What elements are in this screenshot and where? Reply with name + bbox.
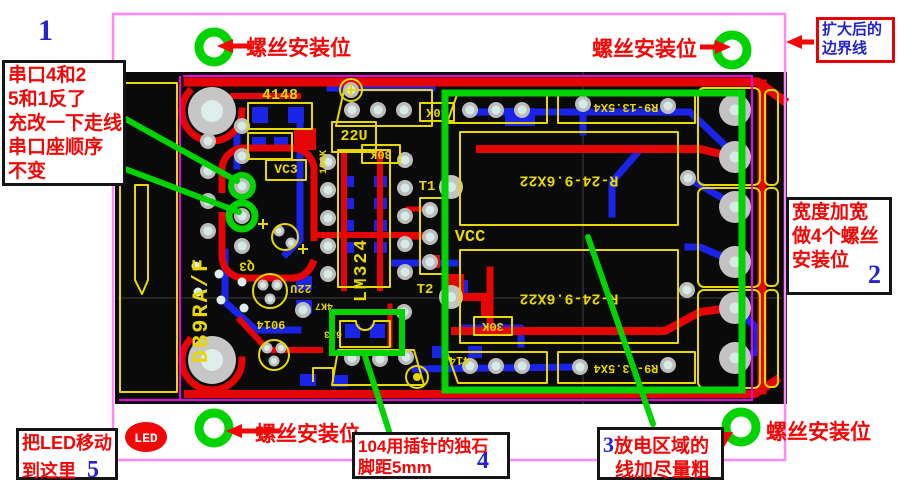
annotated-pcb-screenshot: DB9RA/F 4148 22U 100K VC3 LM324 T1 T2 VC…: [0, 0, 900, 480]
note-line: 充改一下走线: [8, 112, 120, 136]
note-line: 到这里 5: [22, 455, 112, 480]
note-line: 扩大后的: [822, 21, 889, 40]
note-line: 做4个螺丝: [792, 225, 886, 249]
note-line: 线加尽量粗: [603, 459, 718, 480]
region-number-5: 5: [87, 457, 99, 480]
label-res-4k7: 4K7: [315, 300, 333, 311]
label-relay-pins-top: R9-13.5X4: [594, 100, 659, 114]
label-t1: T1: [419, 179, 436, 195]
screw-label-top-left: 螺丝安装位: [246, 32, 351, 62]
note-line: 宽度加宽: [792, 201, 886, 225]
note-line: 3放电区域的: [603, 431, 718, 459]
label-q3: Q3: [239, 259, 255, 274]
note-line: 串口4和2: [8, 64, 120, 88]
label-9014: 9014: [257, 317, 286, 331]
label-relay-pins-bottom: R9-13.5X4: [594, 361, 659, 375]
label-res-30k-c: 30K: [481, 319, 503, 333]
region-number-3: 3: [603, 432, 614, 457]
note-line: 不变: [8, 160, 120, 184]
region-number-4: 4: [477, 446, 489, 476]
note-line: 边界线: [822, 40, 889, 59]
label-cap-22u-top: 22U: [340, 128, 367, 145]
label-res-100k: 100K: [319, 150, 330, 174]
label-t2: T2: [417, 282, 434, 298]
note-move-led: 把LED移动 到这里 5: [16, 428, 118, 480]
label-cap-22u-b: 22U: [290, 281, 312, 295]
label-lm324: LM324: [352, 238, 372, 302]
region-number-1: 1: [38, 14, 53, 48]
screw-position-marker-bottom-right: [726, 412, 756, 442]
note-serial-port: 串口4和2 5和1反了 充改一下走线 串口座顺序 不变: [2, 60, 126, 186]
screw-label-top-right: 螺丝安装位: [592, 33, 697, 63]
label-vcc: VCC: [455, 228, 486, 247]
arrow-boundary-icon: [786, 35, 814, 49]
led-marker-label: LED: [134, 431, 158, 446]
screw-label-bottom-right: 螺丝安装位: [766, 416, 871, 446]
label-db9-connector: DB9RA/F: [189, 257, 214, 363]
led-marker: LED: [125, 422, 167, 452]
note-line-text: 到这里: [22, 461, 76, 480]
screw-position-marker-bottom-left: [199, 413, 229, 443]
note-line: 串口座顺序: [8, 136, 120, 160]
note-cap-104: 104用插针的独石 脚距5mm 4: [352, 432, 510, 479]
label-relay1: R-24-9.6X22: [519, 172, 618, 189]
label-res-30k-b: 30K: [369, 147, 391, 161]
screw-label-bottom-left: 螺丝安装位: [255, 418, 360, 448]
note-widen-board: 宽度加宽 做4个螺丝 安装位 2: [786, 197, 892, 295]
note-line-text: 放电区域的: [614, 436, 709, 457]
region-number-2: 2: [868, 259, 881, 292]
pcb-layout-graphic: DB9RA/F 4148 22U 100K VC3 LM324 T1 T2 VC…: [0, 0, 900, 480]
note-discharge-area: 3放电区域的 线加尽量粗: [597, 427, 724, 480]
note-expanded-boundary: 扩大后的 边界线: [816, 17, 895, 63]
label-vc3: VC3: [274, 162, 298, 177]
note-line: 5和1反了: [8, 88, 120, 112]
note-line: 把LED移动: [22, 432, 112, 455]
label-diode-4148-top: 4148: [262, 87, 298, 104]
arrow-right-icon: [700, 40, 731, 54]
label-relay2: R-24-9.6X22: [519, 290, 618, 307]
